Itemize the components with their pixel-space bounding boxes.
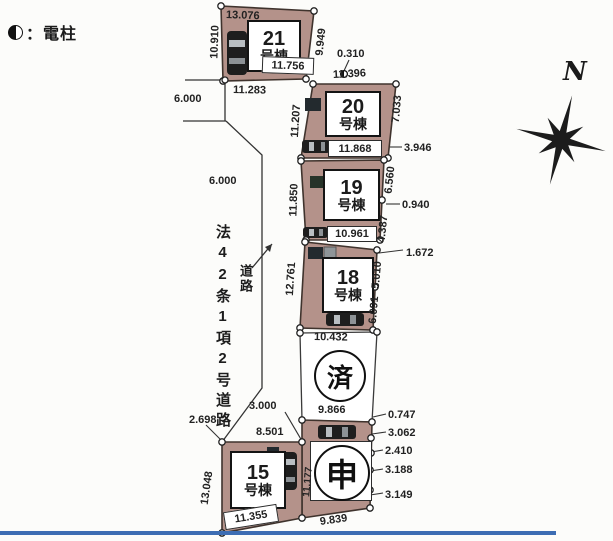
dim-lot18-left: 12.761 [284, 262, 298, 296]
road-width-bend: 3.000 [249, 400, 277, 412]
dim-lot21-top: 13.076 [226, 9, 260, 22]
car-icon [326, 313, 364, 326]
dim-lot20-top: 11.396 [333, 67, 367, 81]
vertex-point [367, 505, 373, 511]
sold-mark: 済 [314, 350, 366, 402]
applied-mark: 申 [314, 445, 370, 501]
dim-lot21-inner-bottom: 11.756 [262, 56, 315, 75]
leader-0747 [373, 414, 386, 417]
lot-20-label: 20 号棟 [325, 91, 381, 137]
vertex-point [374, 329, 380, 335]
lot-20-number: 20 [342, 97, 364, 117]
callout-0940: 0.940 [402, 199, 430, 211]
road-width-mid: 6.000 [209, 175, 237, 187]
leader-1672 [379, 250, 403, 253]
vertex-point [222, 77, 228, 83]
callout-3062: 3.062 [388, 427, 416, 439]
vertex-point [393, 81, 399, 87]
vertex-point [303, 76, 309, 82]
lot-19-suffix: 号棟 [338, 198, 366, 212]
vertex-point [381, 157, 387, 163]
compass-star [505, 84, 613, 196]
dim-lot21-left: 10.910 [208, 25, 221, 59]
legend-label: ：電柱 [26, 20, 77, 44]
callout-3188: 3.188 [385, 464, 413, 476]
vertex-point [299, 417, 305, 423]
leader-3062 [372, 432, 386, 434]
dim-lot19-left: 11.850 [287, 183, 300, 216]
vertex-point [298, 158, 304, 164]
dim-lot21-below: 11.283 [233, 84, 266, 97]
callout-3946: 3.946 [404, 142, 432, 154]
dim-sold-bottom: 9.866 [318, 404, 346, 416]
vertex-point [299, 439, 305, 445]
approach-edge [285, 412, 302, 441]
lot-18-label: 18 号棟 [322, 257, 374, 313]
vertex-point [297, 330, 303, 336]
legend: ：電柱 [8, 20, 77, 44]
car-icon [227, 31, 247, 75]
dim-lot20-left: 11.207 [289, 104, 303, 138]
utility-box-icon [308, 247, 323, 259]
vertex-point [219, 439, 225, 445]
dim-lot19-bottom: 10.961 [327, 226, 377, 242]
lot-20-suffix: 号棟 [339, 117, 367, 131]
lot-15-suffix: 号棟 [244, 483, 272, 497]
car-icon [302, 140, 330, 153]
dim-lot15-top: 8.501 [256, 426, 284, 438]
dim-lot15-corner: 2.698 [189, 414, 217, 426]
dim-lot18-bottom: 10.432 [314, 331, 348, 344]
road-width-top: 6.000 [174, 93, 202, 105]
vertex-point [369, 419, 375, 425]
callout-2410: 2.410 [385, 445, 413, 457]
lot-19-label: 19 号棟 [323, 169, 380, 221]
dim-lot18-right-lower: 6.091 [367, 296, 381, 324]
dim-lot20-right: 7.033 [390, 95, 404, 123]
site-plan: ：電柱 N 法42条1項2号道路 道路 21 号棟 20 号棟 19 号棟 18… [0, 0, 613, 541]
lot-18-number: 18 [337, 268, 359, 288]
lot-15-label: 15 号棟 [230, 451, 286, 509]
dim-lot20-bottom: 11.868 [328, 140, 382, 157]
lot-19-number: 19 [340, 178, 362, 198]
compass-north-label: N [563, 57, 587, 87]
plan-geometry [0, 0, 613, 541]
lot-18-suffix: 号棟 [334, 288, 362, 302]
vertex-point [310, 81, 316, 87]
vertex-point [299, 515, 305, 521]
lot-21-number: 21 [263, 29, 285, 49]
utility-pole-icon [8, 25, 23, 40]
lot-15-number: 15 [247, 463, 269, 483]
page-divider-line [0, 531, 556, 535]
callout-1672: 1.672 [406, 247, 434, 259]
callout-0310: 0.310 [337, 48, 365, 60]
road-name-label: 法42条1項2号道路 [212, 224, 233, 432]
callout-0747: 0.747 [388, 409, 416, 421]
vertex-point [374, 247, 380, 253]
vertex-point [302, 239, 308, 245]
utility-box-icon [305, 98, 321, 111]
vertex-point [218, 3, 224, 9]
dim-lot18-right-upper: 5.010 [370, 261, 384, 289]
car-icon [318, 425, 356, 439]
callout-3149: 3.149 [385, 489, 413, 501]
road-callout-label: 道路 [236, 264, 255, 294]
vertex-point [311, 8, 317, 14]
